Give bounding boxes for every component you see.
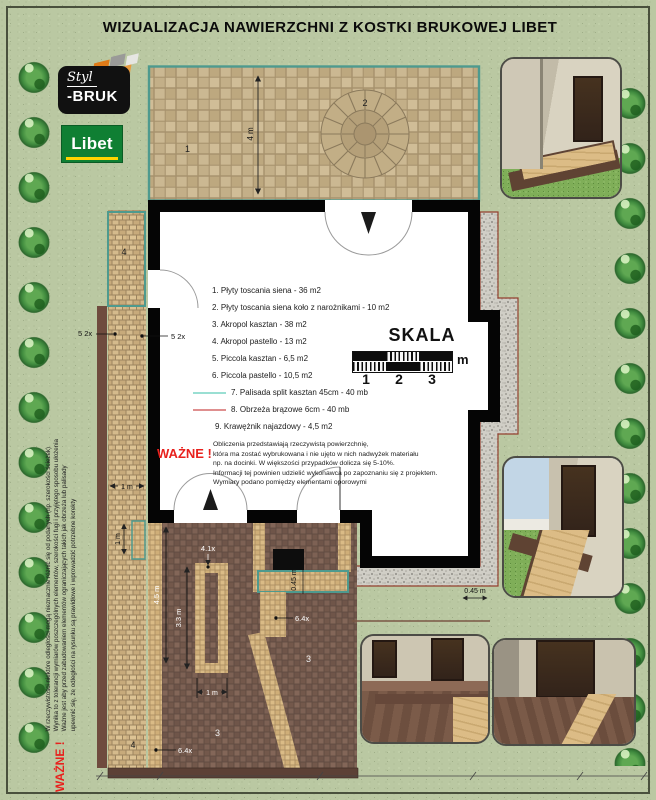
inset-width-dimension: 1 m: [206, 690, 218, 697]
scale-unit: m: [457, 352, 469, 367]
legend-item: 6. Piccola pastello - 10,5 m2: [193, 372, 455, 380]
scale-tick-3: 3: [424, 371, 440, 387]
important-label: WAŻNE !: [157, 446, 212, 461]
calculation-note: Obliczenia przedstawiają rzeczywistą pow…: [213, 440, 469, 488]
garage-door-image: [536, 640, 595, 698]
stylbruk-text-bottom: -BRUK: [67, 88, 130, 105]
area-label-driveway-a: 3: [215, 728, 220, 738]
page-title: WIZUALIZACJA NAWIERZCHNI Z KOSTKI BRUKOW…: [60, 19, 600, 36]
palisade-outline-small: [132, 521, 145, 559]
legend-item-palisada: 7. Palisada split kasztan 45cm - 40 mb: [193, 389, 455, 397]
area-label-circle: 2: [362, 98, 367, 108]
photo-garage-entry: [492, 638, 636, 746]
legend-item-obrzeza: 8. Obrzeża brązowe 6cm - 40 mb: [193, 406, 455, 414]
area-label-path-bottom: 4: [130, 740, 135, 750]
area-label-driveway-b: 3: [306, 654, 311, 664]
gravel-bottom-dimension: 0.45 m: [463, 588, 487, 598]
door-image: [431, 638, 464, 680]
palisada-swatch: [193, 392, 226, 394]
band-count-label-a: 6.4x: [295, 614, 309, 623]
area-label-terrace: 1: [185, 144, 190, 154]
plan-sheet: WIZUALIZACJA NAWIERZCHNI Z KOSTKI BRUKOW…: [0, 0, 656, 800]
scale-seg: [386, 352, 419, 361]
legend-item: 9. Krawężnik najazdowy - 4,5 m2: [193, 423, 455, 431]
obrzeza-swatch: [193, 409, 226, 411]
terrace-depth-dimension: 4 m: [246, 127, 255, 141]
inset-count-label: 4.1x: [201, 544, 215, 553]
libet-logo: Libet: [62, 126, 122, 162]
side-note-line: Ważne jest aby przed zabudowaniem elemen…: [61, 439, 69, 731]
scale-seg: [386, 362, 419, 371]
stylbruk-text-top: Styl: [67, 70, 97, 87]
palisade-length-dimension: 1 m: [115, 533, 122, 545]
walkway: 4 1 m 4: [97, 210, 146, 768]
scale-seg: [419, 352, 452, 361]
walkway-edging: [97, 306, 107, 768]
side-important-label: WAŻNE !: [53, 741, 67, 792]
photo-entrance-detail: [500, 57, 622, 199]
scale-tick-2: 2: [391, 371, 407, 387]
scale-title: SKALA: [372, 325, 472, 346]
walkway-width-dimension: 1 m: [121, 484, 133, 491]
door-image: [372, 640, 397, 678]
scale-seg: [419, 362, 452, 371]
gravel-width-dimension-side: 0.45 m: [291, 569, 298, 591]
inset-length-dimension: 3.3 m: [174, 609, 183, 628]
stylbruk-logo: Styl -BRUK: [58, 58, 142, 118]
side-note: WAŻNE ! W rzeczywistości niektóre odległ…: [45, 370, 91, 792]
gate-pillar: [273, 549, 304, 571]
scale-bar: [352, 351, 453, 373]
photo-entrance-path: [502, 456, 624, 598]
side-note-line: Wynika to z tolerancji wymiarów poszczeg…: [53, 439, 61, 731]
libet-logo-text: Libet: [71, 134, 113, 154]
edging-count-left: 5 2x: [78, 329, 92, 338]
terrace-area: 4 m 1 2: [149, 67, 479, 201]
photo-front-steps: [360, 634, 490, 744]
scale-seg: [353, 362, 386, 371]
driveway-curb: [108, 768, 358, 778]
band-count-label-b: 6.4x: [178, 746, 192, 755]
svg-text:0.45 m: 0.45 m: [464, 588, 486, 595]
side-note-line: W rzeczywistości niektóre odległości mog…: [45, 439, 53, 731]
scale-tick-1: 1: [358, 371, 374, 387]
legend-item: 1. Płyty toscania siena - 36 m2: [193, 287, 455, 295]
libet-logo-underline: [66, 157, 118, 160]
scale-seg: [353, 352, 386, 361]
legend-item: 2. Płyty toscania siena koło z narożnika…: [193, 304, 455, 312]
door-image: [561, 465, 596, 537]
door-image: [573, 76, 604, 142]
stylbruk-plate: Styl -BRUK: [58, 66, 130, 114]
area-label-path-top: 4: [121, 247, 126, 257]
edging-count-right: 5 2x: [171, 332, 185, 341]
driveway-length-dimension: 4.5 m: [152, 586, 161, 605]
side-note-line: upewnić się, że odległości na rysunku są…: [70, 439, 78, 731]
